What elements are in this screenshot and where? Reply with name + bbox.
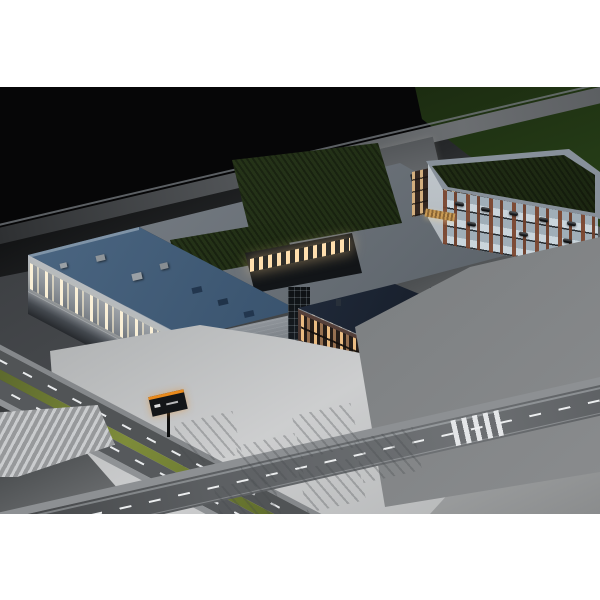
- photo-band: [0, 87, 600, 514]
- scenery-layer: [0, 87, 600, 514]
- architectural-rendering: [0, 0, 600, 600]
